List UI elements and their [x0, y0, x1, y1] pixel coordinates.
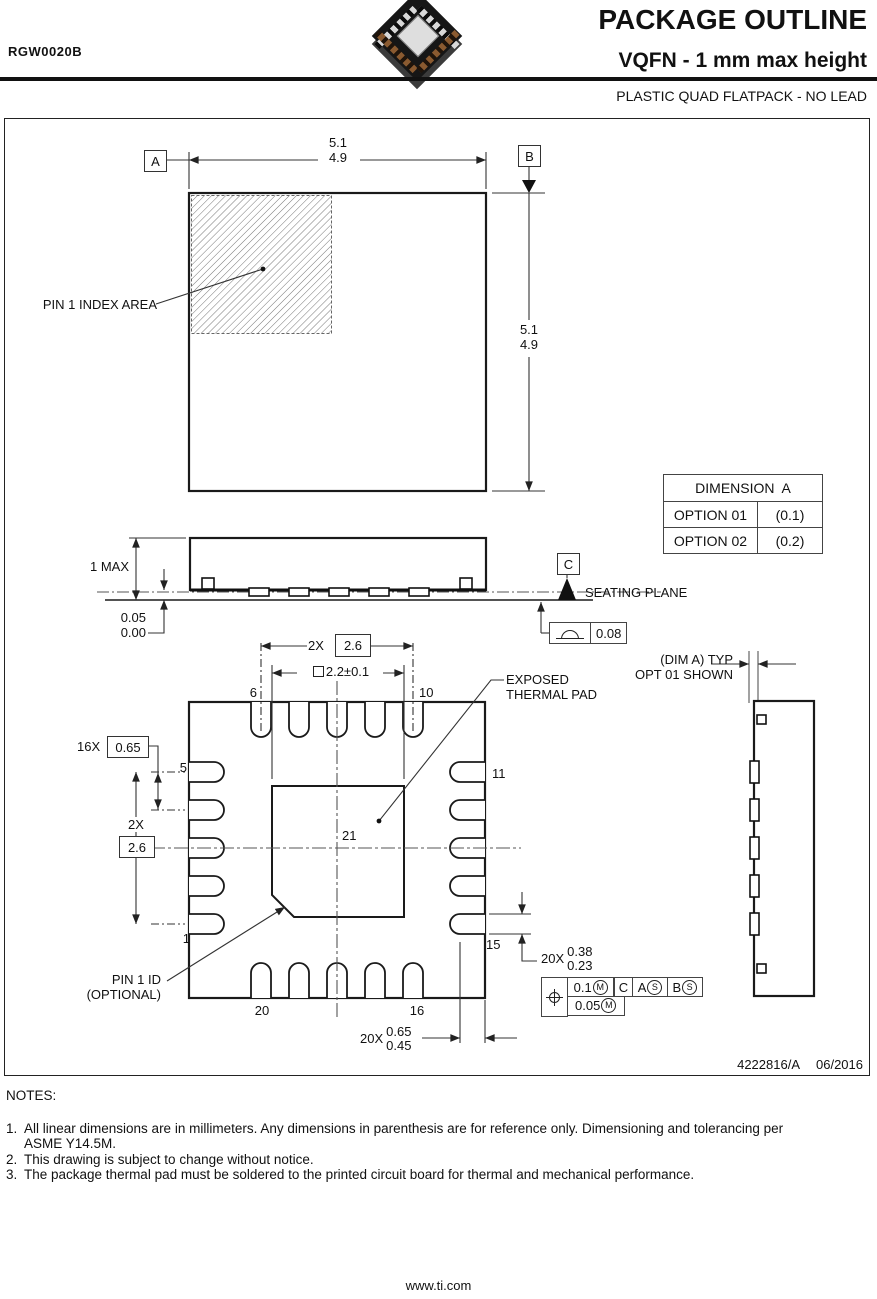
lead-width-min: 0.23 — [567, 959, 592, 973]
width-min: 4.9 — [310, 150, 366, 165]
fcf-datum-c-cell: C — [613, 977, 633, 997]
pitch-value: 0.65 — [115, 740, 140, 755]
feature-control-frame: 0.1 M C A S B S 0.05 M — [541, 977, 703, 1017]
pitch-qty: 16X — [77, 739, 100, 754]
exposed-pad-line2: THERMAL PAD — [506, 687, 597, 702]
drawing-frame: A 5.1 4.9 B 5.1 4.9 PIN 1 INDEX AREA 1 M… — [4, 118, 870, 1076]
pin-6-label: 6 — [239, 685, 257, 700]
package-outline-page: RGW0020B PACKAGE OUTLINE VQFN - 1 mm max… — [0, 0, 877, 1299]
website-link[interactable]: www.ti.com — [0, 1278, 877, 1293]
flatness-value: 0.08 — [590, 623, 626, 643]
pin-5-label: 5 — [171, 760, 187, 775]
top-width-dim: 5.1 4.9 — [310, 135, 366, 165]
fcf-tol-primary: 0.1 — [574, 980, 592, 995]
package-subtitle: VQFN - 1 mm max height — [618, 49, 867, 73]
seating-plane-label: SEATING PLANE — [585, 585, 687, 600]
pin-10-label: 10 — [419, 685, 433, 700]
dimension-a-table: DIMENSION A OPTION 01 (0.1) OPTION 02 (0… — [663, 474, 823, 554]
flatness-frame: 0.08 — [549, 622, 627, 644]
note-item: 3. The package thermal pad must be solde… — [6, 1167, 868, 1183]
document-id: 4222816/A06/2016 — [737, 1057, 863, 1072]
pin1-id-line1: PIN 1 ID — [57, 972, 161, 987]
top-view — [156, 152, 545, 491]
mmc-symbol: M — [593, 980, 608, 995]
page-title: PACKAGE OUTLINE — [598, 4, 867, 36]
datum-b-box: B — [518, 145, 541, 167]
height-max: 5.1 — [509, 322, 549, 337]
header-rule — [0, 77, 877, 81]
top-pitch-value: 2.6 — [344, 638, 362, 653]
fcf-secondary-cell: 0.05 M — [567, 996, 625, 1016]
pin-21-label: 21 — [342, 828, 356, 843]
dimension-a-title: DIMENSION A — [664, 475, 822, 502]
doc-number: 4222816/A — [737, 1057, 800, 1072]
lead-length-min: 0.45 — [386, 1039, 411, 1053]
square-symbol — [313, 666, 324, 677]
rfs-symbol: S — [647, 980, 662, 995]
top-height-dim: 5.1 4.9 — [509, 322, 549, 352]
pin-16-label: 16 — [405, 1003, 429, 1018]
part-number: RGW0020B — [8, 44, 82, 59]
dim-a-note-line2: OPT 01 SHOWN — [601, 667, 733, 682]
option-02-value: (0.2) — [758, 528, 822, 553]
lead-length-qty: 20X — [360, 1032, 383, 1046]
package-type: PLASTIC QUAD FLATPACK - NO LEAD — [616, 88, 867, 104]
datum-b-label: B — [525, 149, 534, 164]
height-min: 4.9 — [509, 337, 549, 352]
mmc-symbol: M — [601, 998, 616, 1013]
datum-a-box: A — [144, 150, 167, 172]
rfs-symbol: S — [682, 980, 697, 995]
left-pitch-value: 2.6 — [128, 840, 146, 855]
pitch-dim: 0.65 — [107, 736, 149, 758]
option-01-value: (0.1) — [758, 502, 822, 527]
datum-c-label: C — [564, 557, 573, 572]
width-max: 5.1 — [310, 135, 366, 150]
datum-c-box: C — [557, 553, 580, 575]
datum-a-label: A — [151, 154, 160, 169]
standoff-dim: 0.05 0.00 — [110, 610, 146, 640]
fcf-tolerance-cell: 0.1 M — [567, 977, 615, 997]
dim-a-note: (DIM A) TYP OPT 01 SHOWN — [601, 652, 733, 682]
body-height-dim: 1 MAX — [75, 559, 129, 574]
notes-section: NOTES: 1. All linear dimensions are in m… — [6, 1088, 868, 1183]
position-symbol — [541, 977, 568, 1017]
pad-size-value: 2.2±0.1 — [326, 664, 369, 679]
left-pitch-qty: 2X — [122, 817, 150, 832]
fcf-datum-a-cell: A S — [632, 977, 668, 997]
pin1-id-line2: (OPTIONAL) — [57, 987, 161, 1002]
pin-15-label: 15 — [486, 937, 500, 952]
seating-plane-symbol — [550, 623, 590, 643]
lead-length-max: 0.65 — [386, 1025, 411, 1039]
fcf-tol-secondary: 0.05 — [575, 998, 600, 1013]
doc-date: 06/2016 — [816, 1057, 863, 1072]
top-pitch-dim: 2.6 — [335, 634, 371, 657]
drawing-linework — [5, 119, 871, 1075]
note-item: 1. All linear dimensions are in millimet… — [6, 1121, 868, 1152]
pin-11-label: 11 — [492, 766, 506, 781]
notes-title: NOTES: — [6, 1088, 868, 1104]
fcf-datum-b-cell: B S — [667, 977, 703, 997]
standoff-min: 0.00 — [110, 625, 146, 640]
standoff-max: 0.05 — [110, 610, 146, 625]
edge-view — [750, 701, 814, 996]
lead-width-max: 0.38 — [567, 945, 592, 959]
option-02: OPTION 02 — [664, 528, 758, 553]
pin-1-label: 1 — [174, 931, 190, 946]
lead-length-dim: 20X 0.65 0.45 — [360, 1025, 411, 1053]
table-row: OPTION 02 (0.2) — [664, 527, 822, 553]
left-pitch-dim: 2.6 — [119, 836, 155, 858]
exposed-pad-label: EXPOSED THERMAL PAD — [506, 672, 597, 702]
option-01: OPTION 01 — [664, 502, 758, 527]
exposed-pad-line1: EXPOSED — [506, 672, 597, 687]
table-row: OPTION 01 (0.1) — [664, 502, 822, 527]
top-pitch-qty: 2X — [308, 638, 324, 653]
pin1-id-label: PIN 1 ID (OPTIONAL) — [57, 972, 161, 1002]
pin1-index-label: PIN 1 INDEX AREA — [29, 297, 157, 312]
chip-photo — [362, 0, 472, 80]
lead-width-dim: 20X 0.38 0.23 — [541, 945, 592, 973]
dim-a-note-line1: (DIM A) TYP — [601, 652, 733, 667]
lead-width-qty: 20X — [541, 952, 564, 966]
note-item: 2. This drawing is subject to change wit… — [6, 1152, 868, 1168]
thermal-pad-dim: 2.2±0.1 — [299, 664, 383, 679]
pin-20-label: 20 — [250, 1003, 274, 1018]
